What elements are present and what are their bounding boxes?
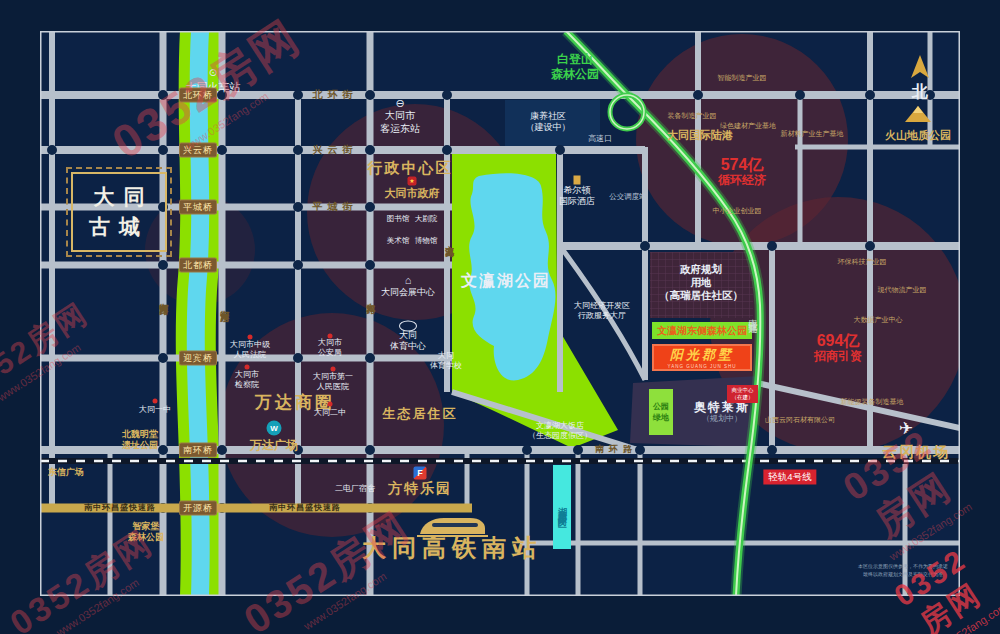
road-label-nanzhonghuan: 南中环昌盛快速路	[269, 503, 341, 513]
airport-label: 云冈机场	[882, 443, 950, 462]
industry-label: 大数据产业中心	[854, 316, 903, 325]
railway-station-icon: ⊙	[209, 67, 217, 80]
eco-zone-label: 生态居住区	[383, 406, 458, 422]
road-label-beihuan: 北环街	[313, 89, 358, 102]
wenying-park-label: 文瀛湖公园	[461, 271, 551, 291]
watermark-brand: 0352房网	[881, 537, 1000, 634]
road-label-nanhuan: 南环路	[595, 444, 637, 455]
procuratorate-label: 大同市 检察院	[235, 370, 259, 390]
government-emblem-icon: ★	[408, 177, 417, 186]
court-label: 大同市中级 人民法院	[230, 340, 270, 360]
road-label-wenying: 文瀛路	[443, 239, 454, 242]
bridge-label: 南环桥	[179, 443, 217, 458]
no2-school-label: 大同二中	[314, 408, 346, 418]
disclaimer-text: 本区位示意图仅供参考，不作为要约承诺 最终以政府规划文件及实际交付为准	[858, 562, 948, 578]
psb-label: 大同市 公安局	[318, 338, 342, 358]
fantawild-logo-icon: F	[414, 467, 427, 480]
sports-school-label: 大同 体育学校	[430, 351, 462, 371]
labels-layer: ⊙ 大同火车站 大同 古城 ⊖ 大同市 客运东站 白登山 森林公园 北 火山地质…	[0, 0, 1000, 634]
bridge-label: 迎宾桥	[179, 351, 217, 366]
gov-planning-label: 政府规划 用地 （高瑞居住社区）	[641, 263, 761, 302]
project-pinyin-label: YANG GUANG JUN SHU	[668, 364, 737, 369]
watermark-url: www.0352fang.com	[0, 328, 103, 417]
commercial-red-label: 商业中心 （在建）	[732, 387, 754, 401]
road-label-ring-expressway: 大同绕城高速	[746, 312, 757, 318]
industry-label: 装备制造产业园	[668, 112, 717, 121]
watermark-brand: 0352房网	[836, 421, 968, 552]
industry-label: 中小企业创业园	[713, 207, 762, 216]
poi-marker-icon	[245, 365, 250, 370]
watermark-url: www.0352fang.com	[26, 558, 168, 634]
admin-zone-label: 行政中心区	[368, 159, 453, 178]
intl-port-label: 大同国际陆港	[667, 129, 733, 143]
city-government-label: 大同市政府	[385, 187, 440, 201]
bridge-label: 开源桥	[179, 501, 217, 516]
tourism-zone-label: 湖东旅游休闲区	[556, 500, 569, 514]
industry-label: 新材料产业生产基地	[781, 130, 844, 139]
commercial-red-block: 商业中心 （在建）	[727, 385, 758, 403]
investment-574-value: 574亿	[721, 156, 764, 174]
art-museum-label: 美术馆	[387, 236, 410, 245]
rail-line4-badge: 轻轨4号线	[763, 470, 816, 485]
poi-marker-icon	[328, 402, 333, 407]
wanda-logo-icon: W	[267, 421, 282, 436]
sports-center-label: 大同 体育中心	[390, 330, 426, 353]
industry-label: 新能源装备制造基地	[841, 398, 904, 407]
econ-zone-hall-label: 大同经济开发区 行政服务大厅	[574, 301, 630, 321]
zhijiabu-park-label: 智家堡 森林公园	[128, 521, 164, 544]
convention-center-label: 大同会展中心	[381, 287, 435, 298]
bridge-label: 兴云桥	[179, 143, 217, 158]
hilton-hotel-label: 希尔顿 国际酒店	[559, 185, 595, 208]
bridge-label: 北环桥	[179, 88, 217, 103]
industry-label: 绿色建材产业基地	[720, 122, 776, 131]
airplane-icon: ✈	[899, 418, 913, 439]
road-label-taihe: 太和路	[364, 296, 375, 299]
industry-label: 环保科技产业园	[838, 258, 887, 267]
investment-694-label: 招商引资	[814, 350, 862, 364]
bridge-label: 北都桥	[179, 258, 217, 273]
fantawild-label: 方特乐园	[388, 480, 452, 498]
volcano-park-label: 火山地质公园	[885, 129, 951, 143]
tourism-zone-bar: 湖东旅游休闲区	[553, 465, 571, 549]
compass-north-label: 北	[912, 82, 928, 102]
project-box: 阳光郡墅 YANG GUANG JUN SHU	[652, 344, 752, 371]
road-label-nanzhonghuan: 南中环昌盛快速路	[84, 503, 156, 513]
theater-label: 大剧院	[415, 214, 438, 223]
kangyang-community-label: 康养社区 （建设中）	[526, 111, 571, 134]
library-label: 图书馆	[387, 214, 410, 223]
hotel-icon	[574, 176, 581, 185]
ancient-city-box: 大同 古城	[71, 172, 167, 252]
road-label-yuhe-east: 御河东路	[218, 303, 229, 307]
highway-exit-label: 高速口	[588, 134, 612, 144]
industry-label: 智能制造产业园	[718, 74, 767, 83]
poi-marker-icon	[248, 335, 253, 340]
wenying-hotel-label: 文瀛湖大饭店 （生态园度假区）	[528, 421, 592, 441]
road-label-pingcheng: 平城街	[313, 201, 358, 214]
watermark-url: www.0352fang.com	[135, 58, 320, 184]
investment-694-value: 694亿	[817, 332, 860, 350]
watermark: 0352房网 www.0352fang.com	[881, 537, 1000, 634]
east-park-bar: 文瀛湖东侧森林公园	[652, 322, 752, 339]
bus-depot-label: 公交调度站	[609, 192, 647, 201]
museum-label: 博物馆	[415, 236, 438, 245]
road-label-xingyun: 兴云街	[313, 144, 358, 157]
project-name-label: 阳光郡墅	[670, 346, 734, 364]
poi-marker-icon	[153, 399, 158, 404]
hospital-label: 大同市第一 人民医院	[313, 372, 353, 392]
no1-school-label: 大同一中	[139, 405, 171, 415]
outlets-note-label: （规划中）	[702, 414, 742, 424]
park-green-label: 公园 绿地	[653, 401, 669, 423]
location-map: ⊙ 大同火车站 大同 古城 ⊖ 大同市 客运东站 白登山 森林公园 北 火山地质…	[0, 0, 1000, 634]
power-dorm-label: 二电厂宿舍	[335, 484, 375, 494]
beiwei-park-label: 北魏明堂 遗址公园	[122, 429, 158, 452]
watermark-url: www.0352fang.com	[887, 500, 975, 563]
watermark-url: www.0352fang.com	[922, 600, 1000, 634]
watermark-brand: 0352房网	[233, 499, 420, 634]
hsr-south-station-label: 大同高铁南站	[362, 533, 542, 563]
ancient-city-label: 大同 古城	[85, 182, 154, 243]
baidengshan-park-label: 白登山 森林公园	[551, 52, 599, 82]
watermark-brand: 0352房网	[0, 293, 97, 406]
bridge-label: 平城桥	[179, 200, 217, 215]
road-label-yuhe-west: 御河西路	[157, 296, 168, 300]
industry-label: 山西云冈石材有限公司	[765, 416, 835, 425]
park-green-block: 公园 绿地	[649, 389, 673, 435]
watermark: 0352房网 www.0352fang.com	[233, 499, 426, 634]
convention-center-icon: ⌂	[405, 274, 412, 288]
industry-label: 现代物流产业园	[878, 286, 927, 295]
watermark: 0352房网 www.0352fang.com	[0, 293, 103, 416]
bus-east-station-label: 大同市 客运东站	[380, 110, 420, 135]
east-park-label: 文瀛湖东侧森林公园	[657, 324, 747, 338]
wanda-plaza-label: 万达广场	[250, 438, 298, 453]
investment-574-label: 循环经济	[718, 174, 766, 188]
poi-marker-icon	[331, 367, 336, 372]
dongxin-plaza-label: 东信广场	[48, 467, 84, 478]
